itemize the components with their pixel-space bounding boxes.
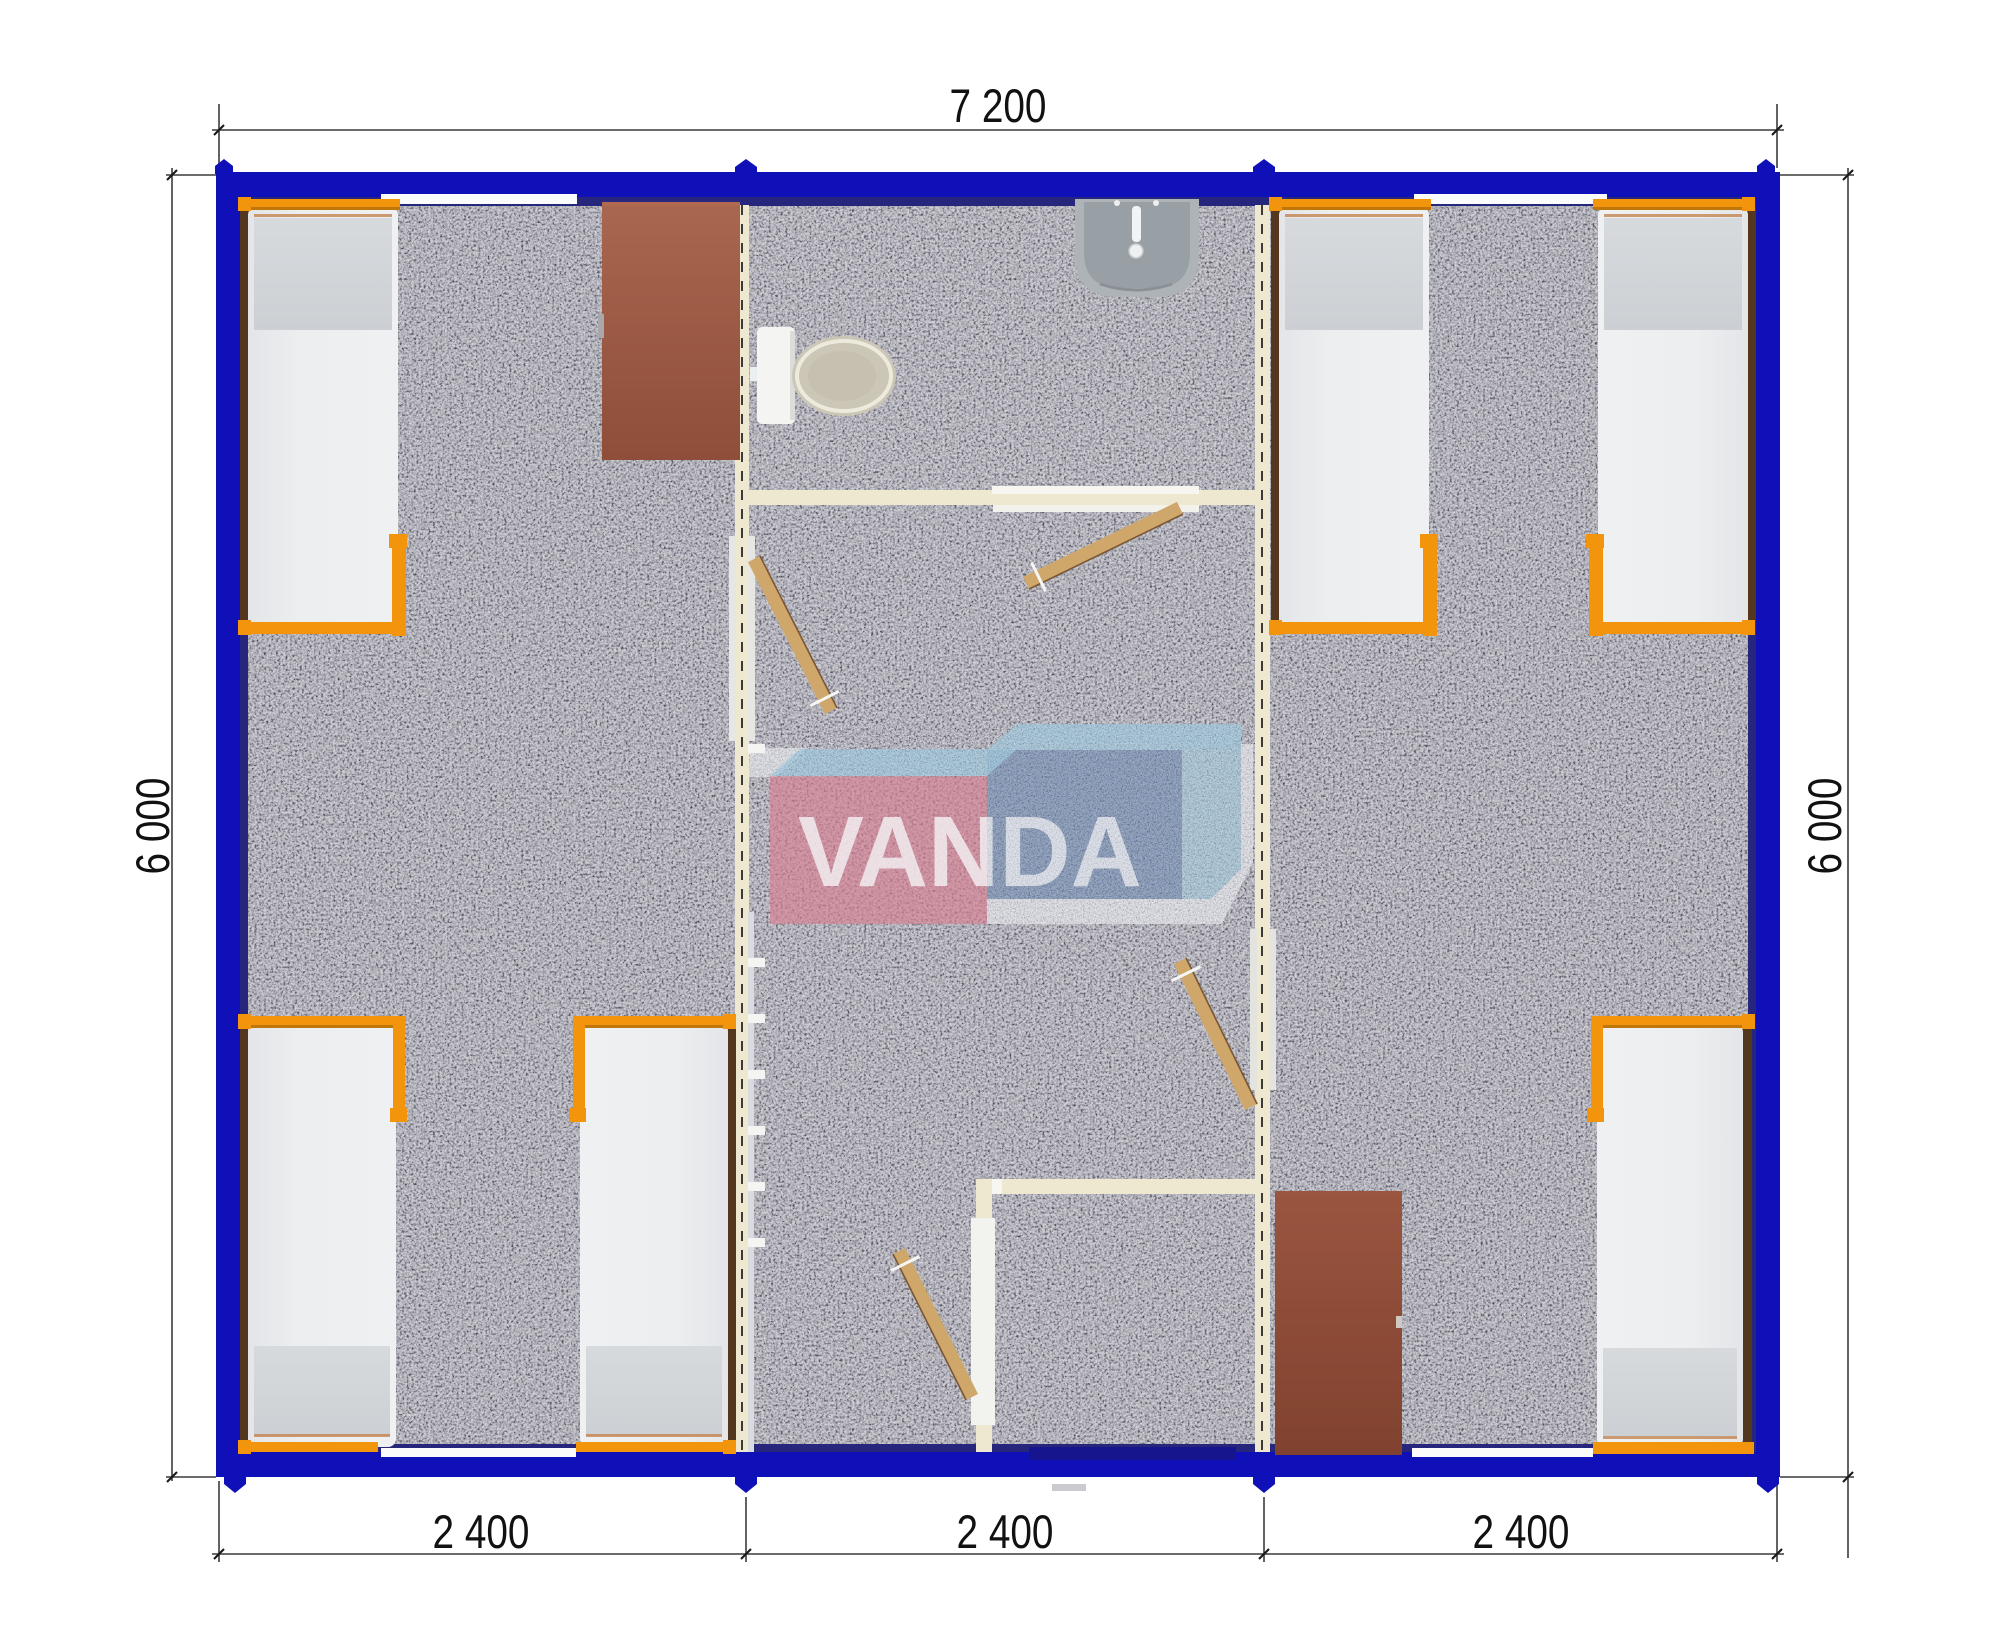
- svg-text:2 400: 2 400: [1473, 1505, 1570, 1558]
- svg-text:2 400: 2 400: [957, 1505, 1054, 1558]
- svg-text:6 000: 6 000: [1798, 778, 1851, 875]
- svg-text:7 200: 7 200: [950, 79, 1047, 132]
- svg-text:2 400: 2 400: [433, 1505, 530, 1558]
- svg-text:6 000: 6 000: [126, 778, 179, 875]
